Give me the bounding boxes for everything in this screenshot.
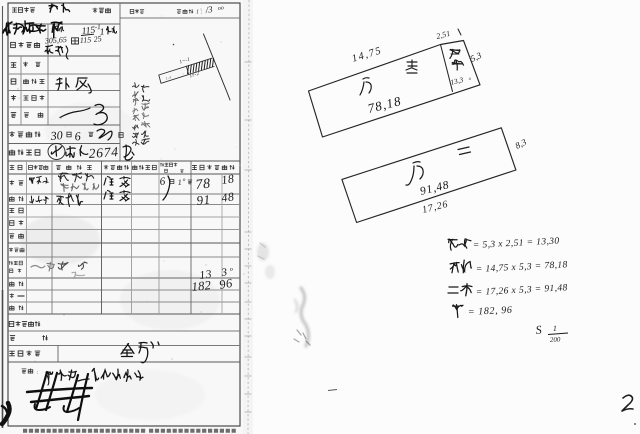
svg-text:48: 48	[220, 189, 235, 205]
svg-text:30: 30	[49, 128, 63, 143]
svg-text:S: S	[535, 323, 542, 337]
svg-text:91: 91	[196, 192, 211, 208]
svg-text:1: 1	[177, 178, 182, 187]
svg-text:oo: oo	[217, 5, 224, 12]
svg-text:26: 26	[88, 145, 104, 161]
svg-text:1 :: 1 :	[196, 10, 203, 16]
svg-text::: :	[37, 370, 39, 376]
svg-text:96: 96	[218, 276, 234, 292]
svg-text:= 182, 96: = 182, 96	[468, 305, 513, 318]
svg-text:18: 18	[220, 171, 235, 187]
svg-text:115: 115	[80, 35, 92, 45]
svg-text:305,65: 305,65	[44, 35, 68, 46]
svg-text:6: 6	[74, 129, 81, 143]
svg-text:182: 182	[191, 278, 212, 294]
svg-text:74: 74	[103, 144, 119, 160]
svg-text:25: 25	[93, 34, 102, 44]
svg-text:200: 200	[550, 335, 561, 344]
svg-text:78: 78	[195, 176, 211, 192]
svg-text:1: 1	[553, 324, 557, 333]
